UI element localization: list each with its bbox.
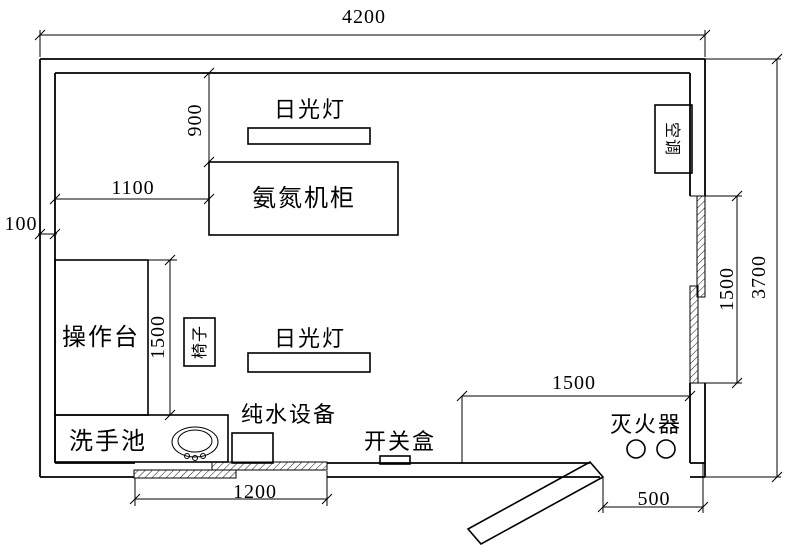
- label-fire-extinguisher: 灭火器: [610, 412, 682, 437]
- dim-lamp-offset: 900: [184, 104, 206, 137]
- fluorescent-lamp-bottom-outline: [248, 353, 370, 372]
- dim-wall-thickness: 100: [5, 213, 38, 235]
- label-ammonia-cabinet: 氨氮机柜: [252, 185, 356, 212]
- dim-workbench: 1500: [147, 315, 169, 359]
- dim-cabinet-offset: 1100: [111, 177, 154, 199]
- label-fluorescent-lamp-top: 日光灯: [274, 97, 346, 122]
- pure-water-equipment-outline: [232, 433, 273, 463]
- equipment: [55, 105, 692, 464]
- label-air-conditioner: 空调: [663, 122, 681, 156]
- sink-drain-mark: [193, 456, 198, 461]
- dim-room-width: 4200: [342, 6, 386, 28]
- door: [468, 462, 603, 544]
- label-switch-box: 开关盒: [364, 429, 436, 454]
- fluorescent-lamp-top-outline: [248, 128, 370, 144]
- label-workbench: 操作台: [62, 324, 140, 351]
- floor-plan-drawing: 4200 3700 1500 900 1100 100 1500 1500 12…: [0, 0, 805, 545]
- dim-right-window: 1500: [716, 267, 738, 311]
- fire-extinguisher-circle: [657, 440, 675, 458]
- label-texts: 日光灯 氨氮机柜 空调 操作台 椅子 日光灯 洗手池 纯水设备 开关盒 灭火器: [62, 97, 682, 455]
- bottom-window-outer-panel: [134, 470, 236, 478]
- label-pure-water-equipment: 纯水设备: [241, 402, 337, 427]
- dim-door-width: 500: [638, 488, 671, 510]
- fire-extinguisher-circle: [627, 440, 645, 458]
- sink-bowl-inner: [178, 430, 212, 452]
- label-wash-basin: 洗手池: [69, 428, 147, 455]
- door-leaf: [468, 462, 603, 544]
- floor-plan-canvas: 4200 3700 1500 900 1100 100 1500 1500 12…: [0, 0, 805, 545]
- dim-room-height: 3700: [748, 255, 770, 299]
- label-fluorescent-lamp-bottom: 日光灯: [274, 326, 346, 351]
- right-window-inner-panel: [690, 286, 698, 383]
- label-chair: 椅子: [191, 325, 209, 359]
- dim-bottom-window: 1200: [233, 481, 277, 503]
- dim-door-zone: 1500: [552, 372, 596, 394]
- right-window-outer-panel: [697, 196, 705, 297]
